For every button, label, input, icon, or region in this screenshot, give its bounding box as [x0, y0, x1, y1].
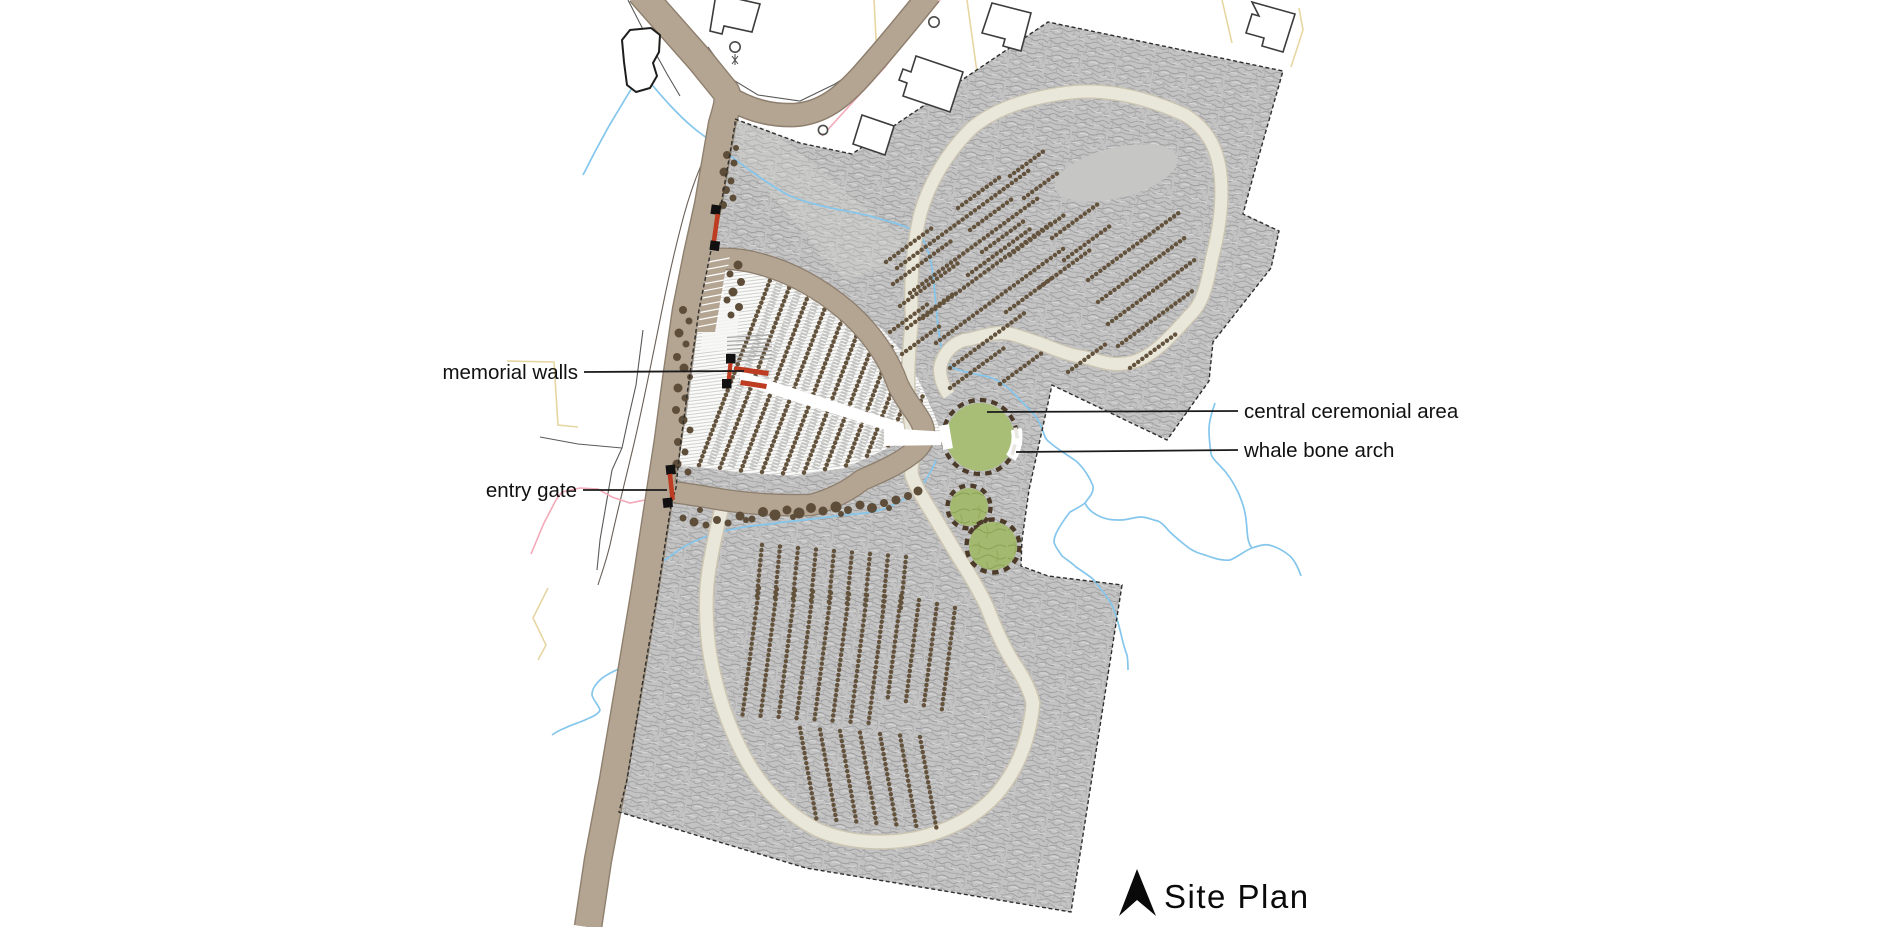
svg-text:memorial walls: memorial walls	[442, 361, 578, 384]
svg-text:whale bone arch: whale bone arch	[1243, 439, 1394, 462]
svg-text:Site Plan: Site Plan	[1164, 878, 1310, 915]
svg-text:entry gate: entry gate	[486, 479, 577, 502]
svg-text:central ceremonial area: central ceremonial area	[1244, 400, 1459, 423]
